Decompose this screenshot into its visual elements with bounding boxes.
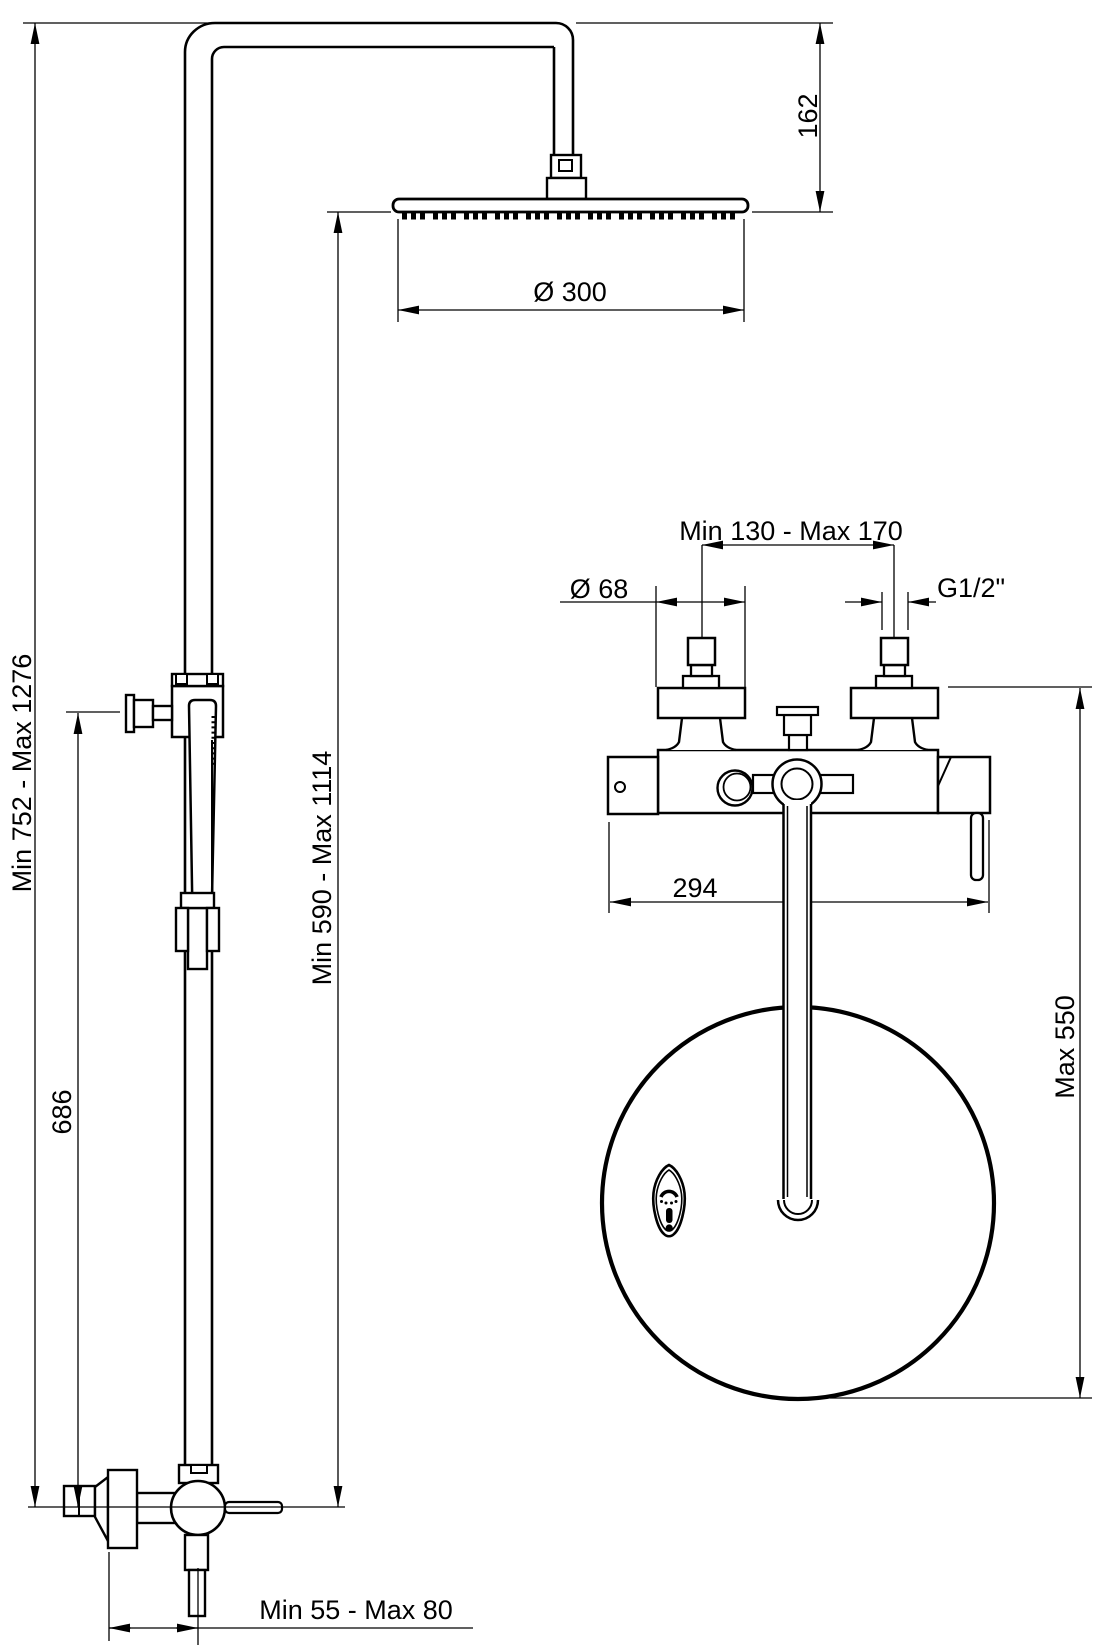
badge-handle-bar	[666, 1208, 673, 1223]
holder-collar-ear	[176, 674, 187, 684]
label-head-diameter: Ø 300	[533, 277, 607, 307]
left-inlet-escutcheon	[658, 688, 745, 718]
left-cap-screw	[615, 782, 625, 792]
badge-handle-dot	[666, 1224, 673, 1231]
badge-spray-dot	[675, 1200, 678, 1203]
wall-mixer-side-view	[64, 1465, 282, 1616]
head-plate	[393, 199, 748, 212]
right-inlet-stem	[884, 665, 905, 676]
label-hose-length: Max 550	[1050, 995, 1080, 1099]
diverter-cap	[777, 707, 818, 715]
arm-end-outer	[556, 23, 573, 155]
dimension-lines	[23, 23, 1092, 1645]
label-inlet-distance: Min 130 - Max 170	[679, 516, 903, 546]
riser-union-notch	[191, 1465, 207, 1473]
inwall-adapter	[95, 1477, 108, 1541]
holder-collar-ear	[207, 674, 218, 684]
riser-inner-bend	[212, 47, 224, 59]
label-thread: G1/2"	[937, 573, 1005, 603]
lower-clamp-tab-left	[176, 908, 188, 951]
left-inlet-flange	[683, 676, 719, 688]
shower-head	[393, 155, 748, 216]
label-outlet-offset: Min 55 - Max 80	[259, 1595, 453, 1625]
wall-escutcheon-side	[108, 1470, 137, 1548]
right-inlet-nut	[881, 638, 908, 665]
label-head-drop: 162	[793, 93, 823, 138]
label-holder-height: 686	[47, 1089, 77, 1134]
riser-outer-bend	[185, 23, 215, 52]
holder-knob-stem	[153, 706, 172, 720]
outlet-upper	[185, 1535, 208, 1570]
riser-pipe	[185, 23, 573, 1465]
lower-clamp-tab-right	[207, 908, 219, 951]
badge-spray-dot	[670, 1202, 673, 1205]
holder-knob	[134, 700, 153, 727]
badge-spray-dot	[660, 1200, 663, 1203]
label-column-height: Min 752 - Max 1276	[7, 654, 37, 893]
dimension-labels: 162 Ø 300 Min 752 - Max 1276 686 Min 590…	[7, 93, 1080, 1625]
dimension-inlet-distance	[702, 545, 894, 637]
label-body-width: 294	[672, 873, 717, 903]
right-inlet-flange	[876, 676, 912, 688]
left-inlet-nut	[688, 638, 715, 665]
label-head-to-outlet: Min 590 - Max 1114	[307, 751, 337, 986]
dimension-thread	[845, 592, 936, 630]
label-escutcheon-diameter: Ø 68	[570, 574, 629, 604]
hose-outlet-inner	[782, 769, 813, 800]
diverter-body	[784, 715, 811, 735]
right-inlet-escutcheon	[851, 688, 938, 718]
diverter-stem	[789, 735, 807, 750]
mixer-lever-front	[971, 813, 983, 880]
outlet-lower	[189, 1570, 205, 1616]
lower-clamp-body	[188, 908, 207, 969]
head-nut-notch	[559, 160, 572, 171]
left-inlet-stem	[691, 665, 712, 676]
badge-spray-dot	[665, 1202, 668, 1205]
head-connector	[547, 178, 586, 199]
hand-shower-assembly	[126, 674, 223, 969]
mixer-right-cap	[938, 757, 990, 813]
technical-drawing-page: 162 Ø 300 Min 752 - Max 1276 686 Min 590…	[0, 0, 1109, 1650]
shower-column-drawing: 162 Ø 300 Min 752 - Max 1276 686 Min 590…	[0, 0, 1109, 1650]
valve-body-side	[171, 1481, 225, 1535]
lower-clamp-collar	[181, 893, 214, 908]
mixer-wall-pipe	[137, 1493, 175, 1523]
